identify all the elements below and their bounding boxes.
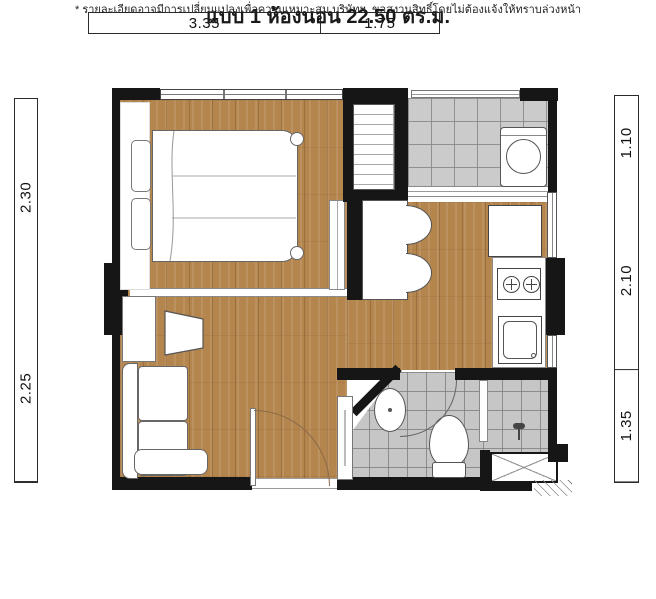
dim-right-1: 1.10 [615,96,638,191]
wall-right [548,95,557,192]
dim-right-2: 2.10 [615,191,638,370]
dim-right-3: 1.35 [615,370,638,482]
burner-icon [503,276,520,293]
refrigerator [488,205,542,257]
wall [480,482,532,491]
pillow [131,140,151,192]
sofa-chaise [134,449,208,475]
dim-left-1: 2.30 [15,99,37,295]
wall-kitchen-divider [347,198,362,290]
kitchen-window [547,335,557,368]
washing-machine [500,127,547,187]
kitchen-window [547,192,557,258]
balcony-railing [411,90,520,98]
wardrobe [353,104,395,190]
faucet-dot [388,408,392,412]
hatch-marks [534,480,572,496]
wall-bathroom [455,368,557,380]
bed [152,130,298,262]
shower-partition [479,380,488,442]
washer-drum [506,139,541,174]
dimension-bar-right: 1.10 2.10 1.35 [614,95,639,483]
burner-icon [523,276,540,293]
bed-headboard-area [120,102,150,290]
tv-console [122,296,156,362]
shower-stem [518,428,520,440]
disclaimer-footnote: * รายละเอียดอาจมีการเปลี่ยนแปลงเพื่อความ… [0,0,656,18]
sofa-cushion [138,366,188,421]
bedroom-window [160,89,343,100]
toilet-tank [432,462,466,478]
pocket-door-panel [329,200,345,290]
wall [548,444,568,462]
bed-corner [290,132,304,146]
sliding-partition [130,288,347,297]
wall-bottom [337,477,497,490]
sink-drain [531,353,536,358]
floorplan-page: 3.35 1.75 2.30 2.25 1.10 2.10 1.35 [0,0,656,599]
balcony-sliding-door [408,186,548,197]
dimension-bar-left: 2.30 2.25 [14,98,38,483]
dim-left-2: 2.25 [15,295,37,482]
dining-counter [362,200,408,300]
pillow [131,198,151,250]
kitchen-sink [498,316,542,364]
bed-corner [290,246,304,260]
shoe-cabinet [337,396,353,480]
